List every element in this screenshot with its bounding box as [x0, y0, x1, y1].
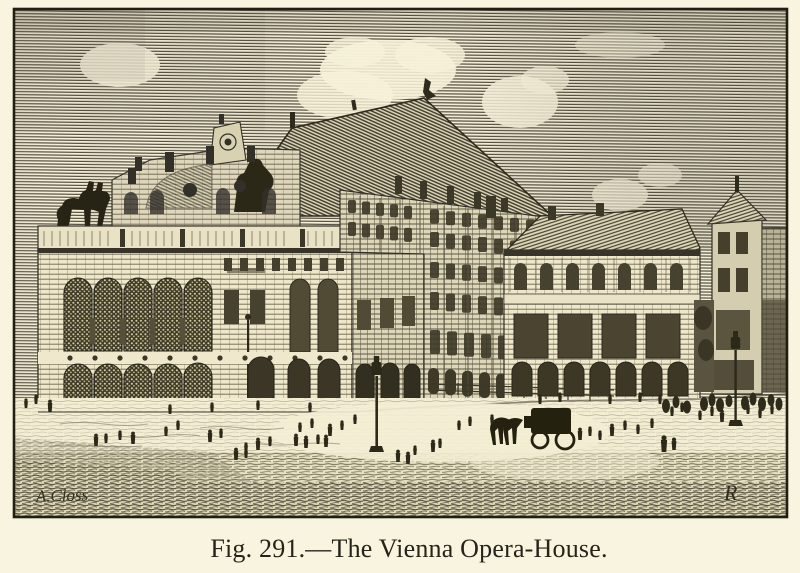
svg-text:R: R — [723, 480, 738, 505]
svg-text:A.Closs: A.Closs — [34, 485, 88, 506]
